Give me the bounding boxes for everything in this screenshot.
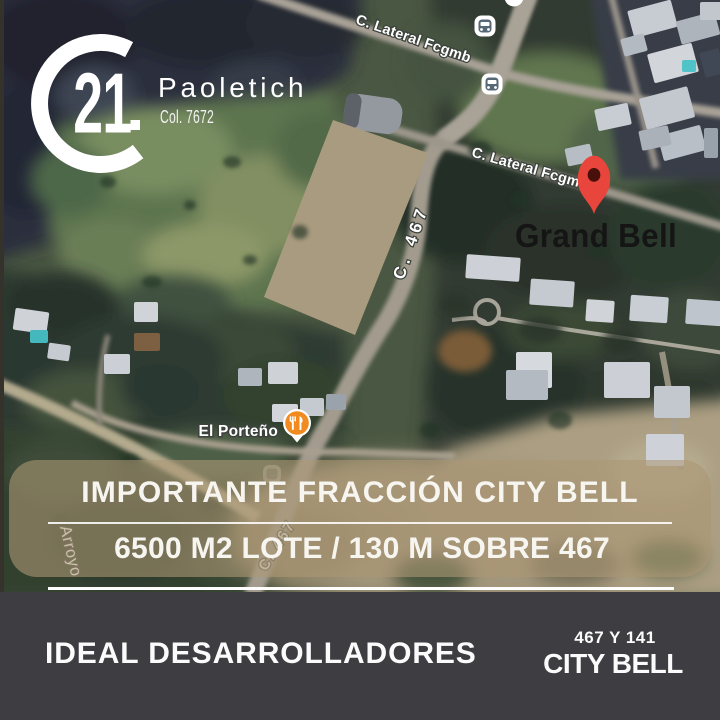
svg-text:Paoletich: Paoletich	[158, 72, 307, 103]
svg-text:El Porteño: El Porteño	[198, 423, 278, 440]
svg-text:21: 21	[73, 57, 131, 152]
svg-text:Grand Bell: Grand Bell	[515, 217, 677, 254]
svg-text:Col. 7672: Col. 7672	[160, 108, 214, 128]
